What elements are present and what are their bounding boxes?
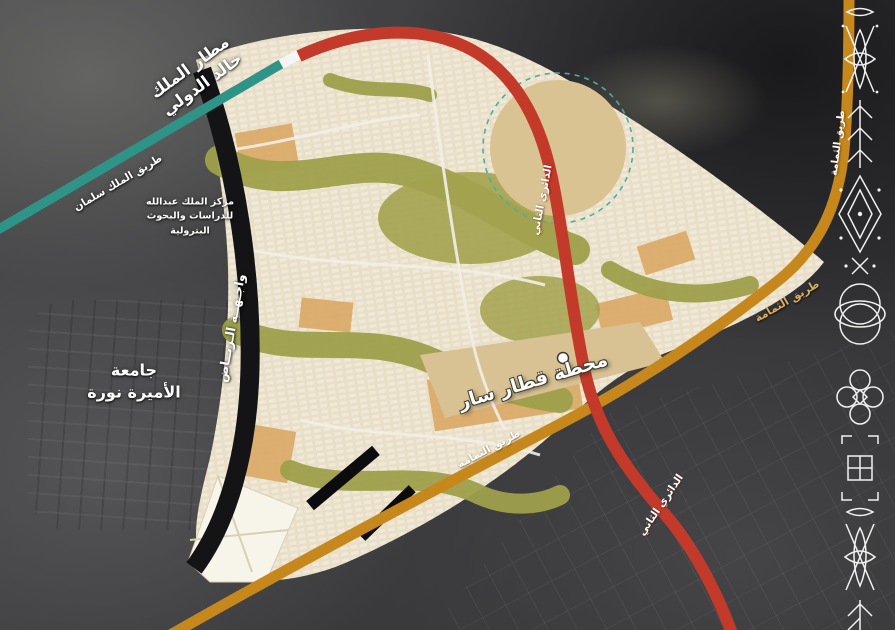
- kapsarc-label-line2: للدراسات والبحوث: [146, 210, 234, 224]
- kapsarc-label: مركز الملك عبدالله للدراسات والبحوث البت…: [146, 196, 234, 239]
- university-label-line1: جامعة: [87, 359, 181, 381]
- university-label-line2: الأميرة نورة: [87, 381, 181, 403]
- university-label: جامعة الأميرة نورة: [87, 359, 181, 402]
- masterplan-map: مطار الملك خالد الدولي طريق الملك سلمان …: [0, 0, 895, 630]
- master-plan: [188, 29, 824, 582]
- kapsarc-label-line1: مركز الملك عبدالله: [146, 196, 234, 210]
- kapsarc-label-line3: البترولية: [146, 224, 234, 238]
